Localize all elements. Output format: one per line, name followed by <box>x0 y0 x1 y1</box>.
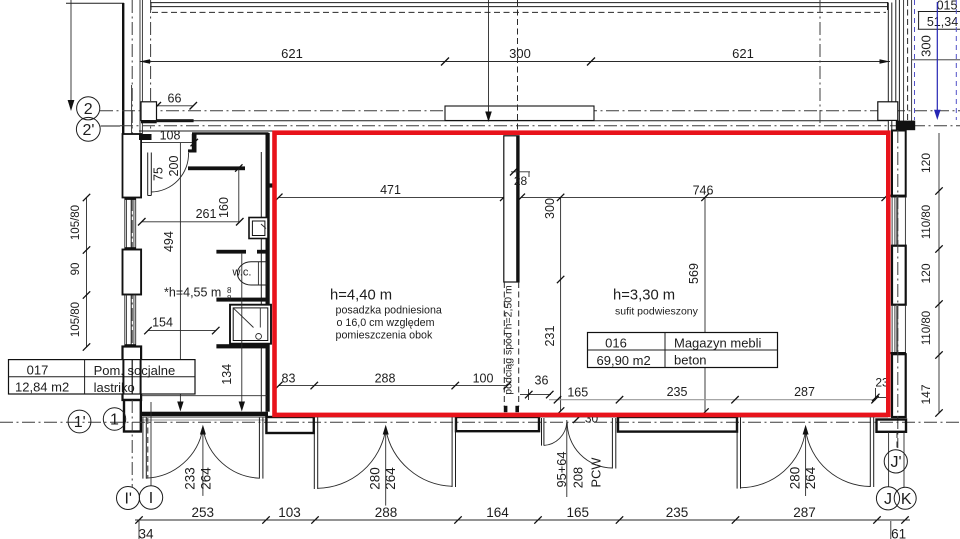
svg-text:100: 100 <box>473 372 494 386</box>
svg-text:110/80: 110/80 <box>921 205 933 239</box>
svg-text:288: 288 <box>375 505 398 520</box>
svg-text:h=4,40 m: h=4,40 m <box>330 288 392 304</box>
svg-text:264: 264 <box>383 467 398 490</box>
svg-text:208: 208 <box>571 467 586 488</box>
svg-text:beton: beton <box>674 352 707 367</box>
svg-text:165: 165 <box>567 505 590 520</box>
svg-text:lastriko: lastriko <box>94 380 135 395</box>
svg-text:34: 34 <box>138 527 154 539</box>
svg-text:1': 1' <box>74 414 86 431</box>
svg-text:300: 300 <box>543 198 557 219</box>
svg-text:120: 120 <box>919 153 933 173</box>
svg-text:288: 288 <box>375 372 396 386</box>
svg-text:165: 165 <box>567 385 588 399</box>
svg-text:J: J <box>884 491 892 508</box>
svg-text:posadzka podniesiona: posadzka podniesiona <box>336 305 442 317</box>
svg-text:233: 233 <box>183 467 198 490</box>
svg-text:h=3,30 m: h=3,30 m <box>613 288 675 304</box>
svg-text:61: 61 <box>891 527 906 539</box>
svg-text:231: 231 <box>543 326 557 347</box>
svg-text:287: 287 <box>793 505 816 520</box>
svg-text:147: 147 <box>919 384 933 404</box>
svg-text:K: K <box>901 491 912 508</box>
svg-text:471: 471 <box>380 183 401 197</box>
svg-text:2: 2 <box>84 101 93 118</box>
svg-text:015: 015 <box>937 0 958 13</box>
svg-text:PCW: PCW <box>589 457 604 488</box>
svg-text:podciąg spód h=2,50 m: podciąg spód h=2,50 m <box>503 285 515 395</box>
svg-text:75: 75 <box>152 167 166 181</box>
svg-text:164: 164 <box>486 505 509 520</box>
svg-text:108: 108 <box>160 129 181 143</box>
svg-text:110/80: 110/80 <box>921 311 933 345</box>
svg-text:235: 235 <box>667 385 688 399</box>
svg-text:I: I <box>149 490 153 507</box>
svg-text:569: 569 <box>687 263 701 284</box>
svg-text:160: 160 <box>217 197 231 218</box>
svg-text:621: 621 <box>281 46 303 61</box>
svg-text:*h=4,55 m: *h=4,55 m <box>164 286 221 300</box>
svg-text:pomieszczenia obok: pomieszczenia obok <box>336 330 433 342</box>
svg-text:016: 016 <box>605 336 627 351</box>
svg-text:28: 28 <box>514 174 528 188</box>
svg-text:494: 494 <box>162 231 176 252</box>
svg-text:253: 253 <box>192 505 215 520</box>
svg-text:sufit podwieszony: sufit podwieszony <box>615 306 699 318</box>
svg-text:95+64: 95+64 <box>554 452 569 488</box>
svg-text:017: 017 <box>27 363 49 378</box>
svg-text:Pom. socjalne: Pom. socjalne <box>94 363 176 378</box>
svg-text:287: 287 <box>794 385 815 399</box>
svg-text:2': 2' <box>83 122 95 139</box>
svg-text:264: 264 <box>803 466 818 489</box>
svg-text:36: 36 <box>535 374 549 388</box>
svg-text:83: 83 <box>282 372 296 386</box>
svg-text:105/80: 105/80 <box>70 205 82 240</box>
svg-text:264: 264 <box>199 467 214 490</box>
svg-text:51,34: 51,34 <box>927 15 958 29</box>
svg-text:103: 103 <box>278 505 301 520</box>
svg-text:I': I' <box>124 491 132 508</box>
svg-text:90: 90 <box>70 263 82 276</box>
svg-text:120: 120 <box>919 263 933 283</box>
svg-text:105/80: 105/80 <box>70 302 82 337</box>
svg-text:261: 261 <box>196 207 217 221</box>
svg-text:134: 134 <box>220 364 234 385</box>
svg-text:154: 154 <box>152 316 173 330</box>
svg-text:8: 8 <box>227 294 232 303</box>
svg-text:300: 300 <box>509 46 531 61</box>
svg-text:621: 621 <box>732 46 754 61</box>
svg-text:746: 746 <box>693 184 714 198</box>
svg-text:69,90 m2: 69,90 m2 <box>597 353 651 368</box>
svg-text:1: 1 <box>110 412 119 429</box>
svg-text:280: 280 <box>368 467 383 490</box>
svg-text:300: 300 <box>919 35 934 57</box>
svg-text:66: 66 <box>168 92 182 106</box>
svg-text:o 16,0 cm względem: o 16,0 cm względem <box>337 317 435 329</box>
svg-text:Magazyn mebli: Magazyn mebli <box>674 336 762 351</box>
svg-text:J': J' <box>890 454 901 471</box>
svg-text:235: 235 <box>666 505 689 520</box>
svg-text:12,84 m2: 12,84 m2 <box>15 380 69 395</box>
svg-text:200: 200 <box>167 156 181 177</box>
svg-text:280: 280 <box>788 467 803 490</box>
